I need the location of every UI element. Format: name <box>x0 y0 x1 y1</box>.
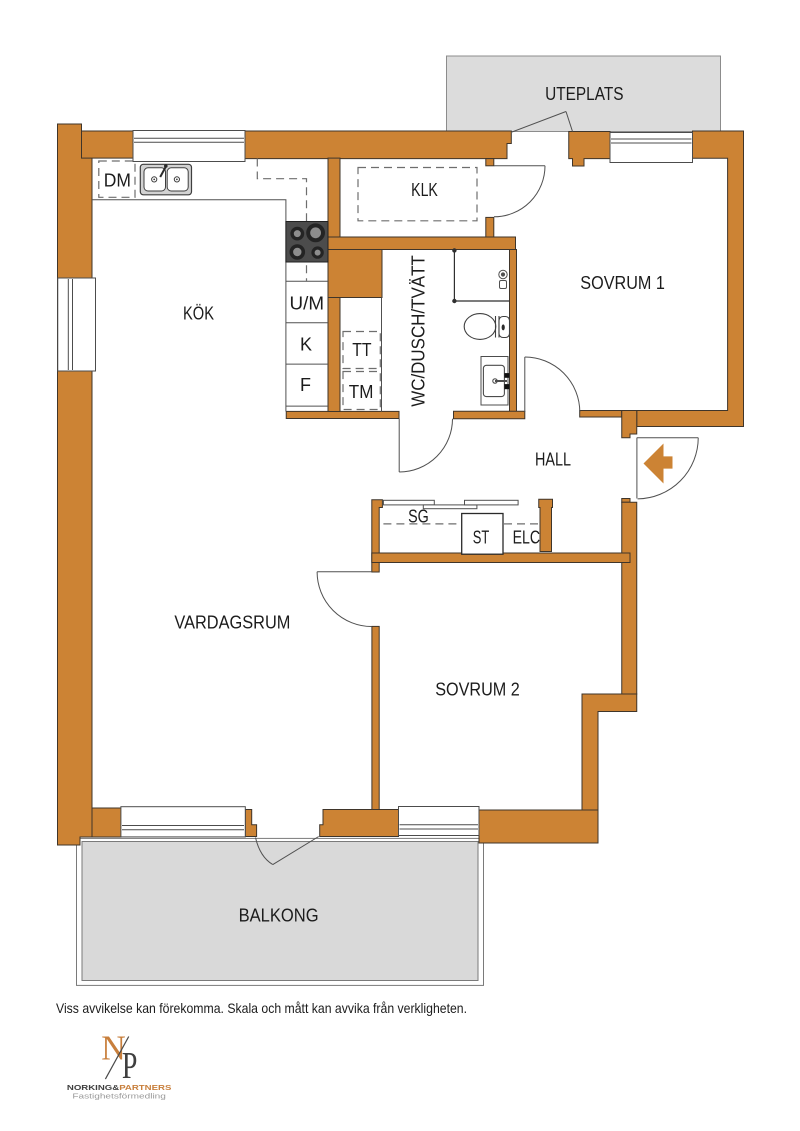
svg-text:TT: TT <box>352 340 371 360</box>
svg-text:SOVRUM 1: SOVRUM 1 <box>580 272 665 293</box>
svg-text:WC/DUSCH/TVÄTT: WC/DUSCH/TVÄTT <box>408 255 429 407</box>
svg-text:SG: SG <box>408 507 429 527</box>
svg-text:VARDAGSRUM: VARDAGSRUM <box>174 612 290 633</box>
svg-text:P: P <box>122 1045 137 1087</box>
svg-text:KÖK: KÖK <box>183 303 215 324</box>
svg-text:ELC: ELC <box>513 527 541 547</box>
svg-text:DM: DM <box>104 171 131 191</box>
svg-text:U/M: U/M <box>290 293 325 313</box>
svg-text:BALKONG: BALKONG <box>239 905 319 926</box>
svg-text:Viss avvikelse kan förekomma.: Viss avvikelse kan förekomma. Skala och … <box>56 1000 467 1016</box>
svg-text:KLK: KLK <box>411 179 438 200</box>
svg-text:SOVRUM 2: SOVRUM 2 <box>435 679 520 700</box>
svg-text:TM: TM <box>349 382 374 402</box>
svg-text:K: K <box>300 334 312 354</box>
svg-text:F: F <box>300 375 311 395</box>
svg-text:Fastighetsförmedling: Fastighetsförmedling <box>72 1091 165 1100</box>
svg-text:HALL: HALL <box>535 448 571 469</box>
svg-text:ST: ST <box>473 527 490 547</box>
svg-text:UTEPLATS: UTEPLATS <box>545 83 623 104</box>
